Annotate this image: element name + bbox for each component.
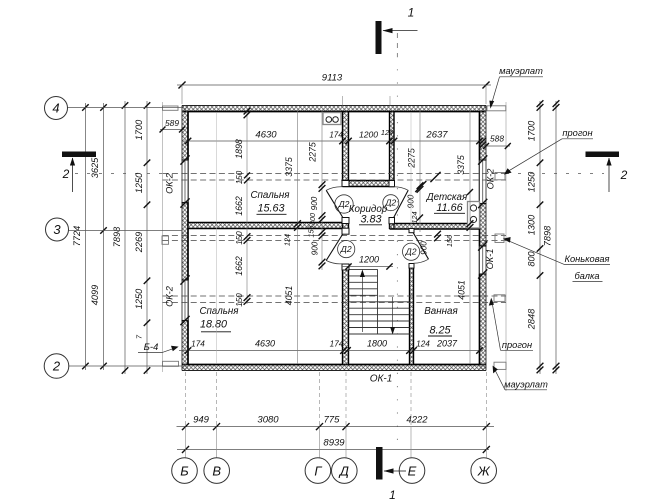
svg-text:174: 174 xyxy=(191,340,205,349)
svg-text:174: 174 xyxy=(330,340,344,349)
svg-text:Спальня: Спальня xyxy=(250,190,290,201)
svg-text:мауэрлат: мауэрлат xyxy=(504,380,548,390)
svg-text:3375: 3375 xyxy=(284,157,294,177)
svg-text:балка: балка xyxy=(574,271,599,281)
svg-text:15.63: 15.63 xyxy=(257,203,284,215)
svg-text:2: 2 xyxy=(52,359,61,374)
svg-text:ОК-1: ОК-1 xyxy=(370,374,393,385)
svg-text:Б: Б xyxy=(180,463,189,478)
svg-text:7898: 7898 xyxy=(112,226,122,247)
svg-text:156: 156 xyxy=(307,226,316,238)
svg-text:прогон: прогон xyxy=(562,128,592,138)
svg-text:900: 900 xyxy=(310,196,319,210)
svg-text:18.80: 18.80 xyxy=(200,319,227,331)
svg-text:4: 4 xyxy=(52,101,59,116)
svg-text:124: 124 xyxy=(283,234,292,246)
svg-text:1200: 1200 xyxy=(359,255,379,265)
svg-text:124: 124 xyxy=(381,128,393,137)
svg-text:8939: 8939 xyxy=(323,438,345,449)
svg-text:1662: 1662 xyxy=(234,196,244,216)
svg-text:7724: 7724 xyxy=(72,226,82,246)
svg-text:1250: 1250 xyxy=(134,288,144,309)
svg-text:Коньковая: Коньковая xyxy=(565,254,610,264)
svg-text:Б-4: Б-4 xyxy=(144,342,159,353)
svg-text:949: 949 xyxy=(193,415,210,426)
svg-text:124: 124 xyxy=(416,340,430,349)
svg-text:1800: 1800 xyxy=(367,339,387,349)
svg-text:ОК-1: ОК-1 xyxy=(485,249,495,270)
svg-text:11.66: 11.66 xyxy=(436,202,462,214)
svg-text:Ванная: Ванная xyxy=(424,306,458,317)
svg-text:2: 2 xyxy=(620,168,628,182)
svg-text:2848: 2848 xyxy=(527,308,537,330)
svg-text:900: 900 xyxy=(311,241,320,255)
svg-text:1: 1 xyxy=(389,488,396,502)
svg-text:3625: 3625 xyxy=(90,157,100,178)
svg-text:1200: 1200 xyxy=(359,130,378,140)
svg-text:4630: 4630 xyxy=(255,130,277,141)
svg-text:прогон: прогон xyxy=(502,340,532,350)
svg-text:3: 3 xyxy=(53,222,61,237)
svg-text:ОК-2: ОК-2 xyxy=(165,286,175,307)
svg-text:1: 1 xyxy=(408,6,415,20)
svg-text:3.83: 3.83 xyxy=(360,213,381,225)
svg-text:1300: 1300 xyxy=(527,214,537,235)
svg-text:2637: 2637 xyxy=(425,130,448,141)
svg-text:2275: 2275 xyxy=(308,142,318,163)
svg-text:Спальня: Спальня xyxy=(199,306,239,317)
svg-text:1898: 1898 xyxy=(234,139,244,159)
svg-text:300: 300 xyxy=(308,213,317,225)
svg-text:ОК-2: ОК-2 xyxy=(165,173,175,194)
svg-text:8.25: 8.25 xyxy=(429,324,451,336)
svg-text:Г: Г xyxy=(314,463,322,478)
svg-text:150: 150 xyxy=(235,293,244,307)
svg-text:4222: 4222 xyxy=(406,415,428,426)
svg-text:156: 156 xyxy=(445,235,454,247)
svg-text:775: 775 xyxy=(324,415,341,426)
svg-text:589: 589 xyxy=(165,118,179,128)
svg-text:150: 150 xyxy=(235,231,244,245)
svg-text:900: 900 xyxy=(420,241,429,255)
svg-text:Д2: Д2 xyxy=(405,246,417,256)
svg-text:3080: 3080 xyxy=(257,415,279,426)
svg-text:1250: 1250 xyxy=(527,171,537,192)
svg-text:150: 150 xyxy=(235,170,244,184)
svg-text:124: 124 xyxy=(410,212,419,224)
svg-text:4630: 4630 xyxy=(255,339,275,349)
svg-text:800: 800 xyxy=(527,250,537,266)
svg-text:Ж: Ж xyxy=(477,463,491,478)
svg-text:ОК-2: ОК-2 xyxy=(486,169,496,190)
svg-text:2269: 2269 xyxy=(134,232,144,253)
svg-text:9113: 9113 xyxy=(322,73,343,84)
svg-text:174: 174 xyxy=(329,131,343,140)
svg-text:2037: 2037 xyxy=(436,339,458,349)
svg-text:1662: 1662 xyxy=(234,256,244,276)
svg-text:4099: 4099 xyxy=(90,285,100,305)
svg-text:4051: 4051 xyxy=(284,286,294,306)
svg-text:3375: 3375 xyxy=(456,155,466,175)
svg-text:1700: 1700 xyxy=(134,119,144,140)
svg-text:2: 2 xyxy=(62,167,70,181)
svg-text:Е: Е xyxy=(408,463,417,478)
svg-text:мауэрлат: мауэрлат xyxy=(499,66,543,76)
svg-text:2275: 2275 xyxy=(407,148,417,169)
svg-text:7898: 7898 xyxy=(543,225,553,246)
svg-text:В: В xyxy=(212,463,221,478)
svg-text:4051: 4051 xyxy=(457,280,467,300)
svg-text:588: 588 xyxy=(490,134,504,144)
svg-text:1700: 1700 xyxy=(527,120,537,141)
svg-text:Д2: Д2 xyxy=(340,244,352,254)
svg-text:Д: Д xyxy=(338,463,349,478)
svg-text:1250: 1250 xyxy=(134,172,144,193)
